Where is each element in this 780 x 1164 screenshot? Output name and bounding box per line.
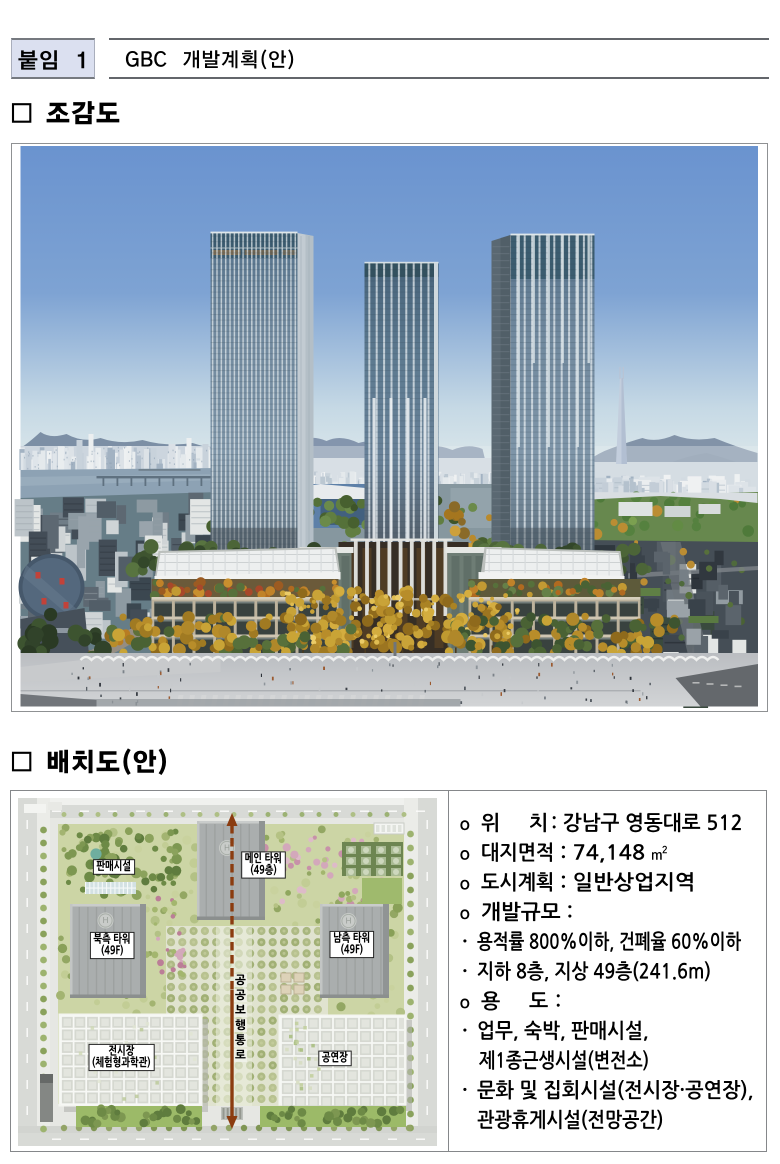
- svg-text:H: H: [224, 843, 230, 852]
- svg-text:H: H: [103, 916, 109, 925]
- svg-text:H: H: [346, 916, 352, 925]
